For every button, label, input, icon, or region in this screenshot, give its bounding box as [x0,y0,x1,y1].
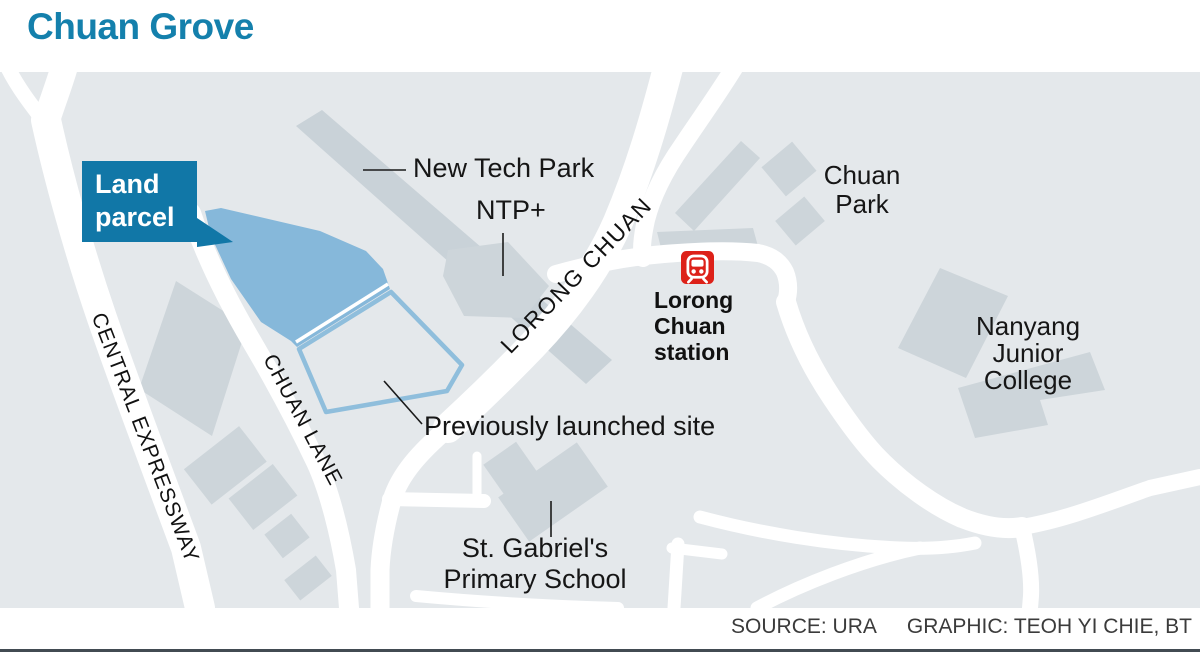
chuan-park-line1: Chuan [798,161,926,190]
road-to-bottom-edge [1022,527,1031,608]
place-label-ntp-plus: NTP+ [476,196,546,224]
road-bottom-right-b [672,548,722,554]
station-line2: Chuan [654,313,733,339]
road-cte-slip-right [46,68,64,122]
st-gabriels-line1: St. Gabriel's [410,533,660,564]
station-line3: station [654,339,733,365]
place-label-chuan-park: Chuan Park [798,161,926,219]
footer-credits: SOURCE: URAGRAPHIC: TEOH YI CHIE, BT [0,615,1192,639]
graphic-credit: GRAPHIC: TEOH YI CHIE, BT [907,615,1192,638]
station-line1: Lorong [654,287,733,313]
nanyang-line2: Junior [950,340,1106,367]
footer-rule [0,649,1200,652]
mrt-station-icon [681,251,714,284]
place-label-previously-launched: Previously launched site [424,412,715,440]
place-label-lorong-chuan-station: Lorong Chuan station [654,287,733,365]
land-parcel-label-line2: parcel [95,201,197,234]
page-title: Chuan Grove [27,6,254,48]
chuan-park-line2: Park [798,190,926,219]
place-label-new-tech-park: New Tech Park [413,154,594,182]
place-label-st-gabriels: St. Gabriel's Primary School [410,533,660,595]
place-label-nanyang-jc: Nanyang Junior College [950,313,1106,394]
land-parcel-label: Land parcel [82,161,197,242]
land-parcel-label-line1: Land [95,168,197,201]
road-school [389,499,484,501]
infographic-chuan-grove-map: Chuan Grove Land parcel CENTRAL EXPRESSW… [0,0,1200,656]
nanyang-line1: Nanyang [950,313,1106,340]
source-credit: SOURCE: URA [731,615,877,638]
nanyang-line3: College [950,367,1106,394]
st-gabriels-line2: Primary School [410,564,660,595]
